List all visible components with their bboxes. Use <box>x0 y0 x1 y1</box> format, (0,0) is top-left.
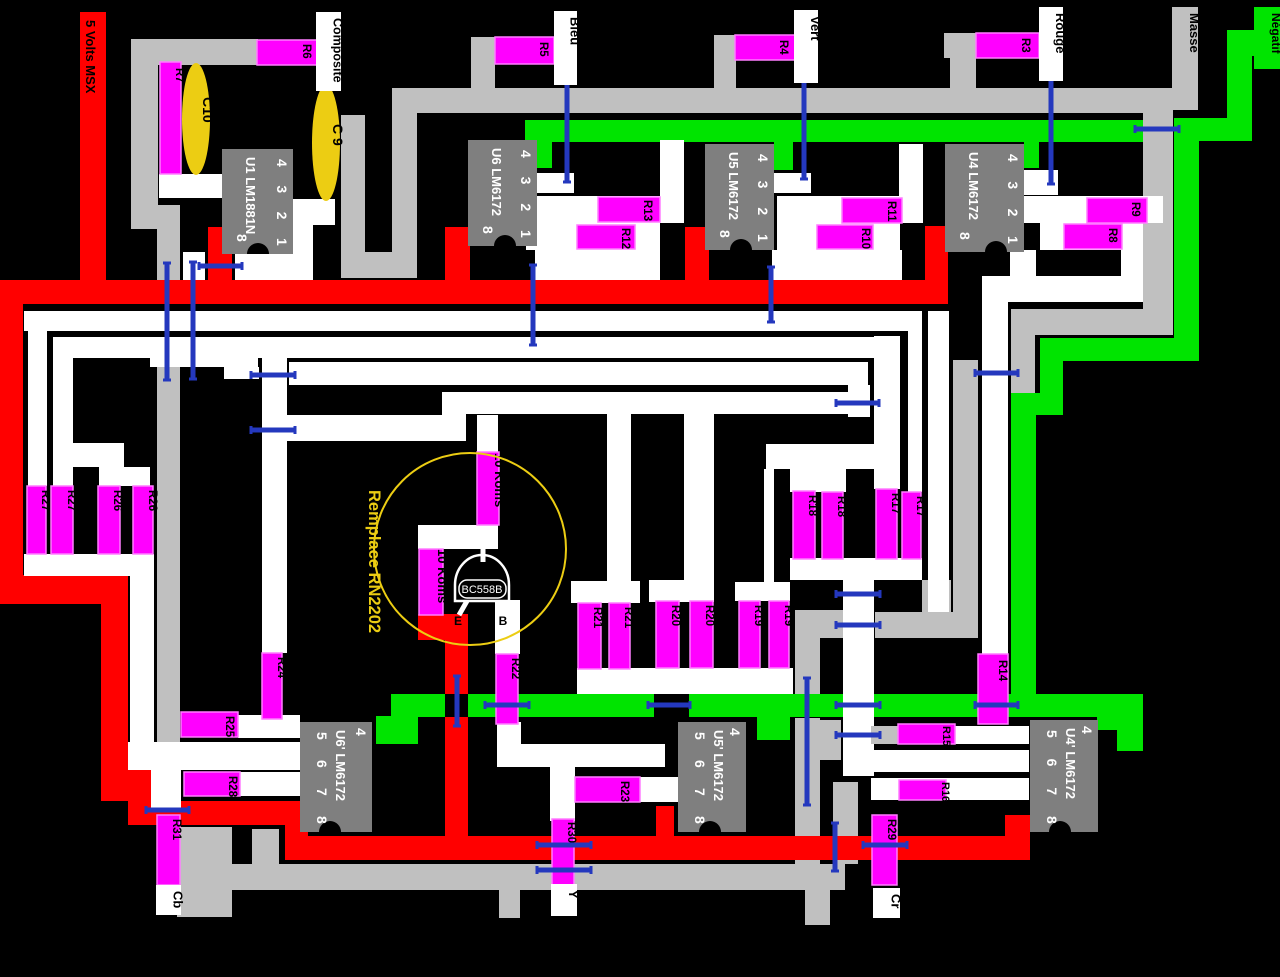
svg-text:Négatif: Négatif <box>1269 13 1280 55</box>
svg-text:R11: R11 <box>885 201 897 222</box>
svg-text:BC558B: BC558B <box>462 584 503 596</box>
svg-text:R30: R30 <box>565 822 577 843</box>
svg-text:Composite: Composite <box>331 18 345 83</box>
svg-text:R8: R8 <box>1106 228 1118 243</box>
svg-text:8: 8 <box>957 232 973 240</box>
svg-text:Cb: Cb <box>171 891 186 908</box>
svg-text:Remplace RN2202: Remplace RN2202 <box>365 490 383 633</box>
svg-text:7: 7 <box>1044 787 1060 795</box>
svg-text:7: 7 <box>692 788 708 796</box>
svg-text:R19: R19 <box>752 605 764 626</box>
svg-text:Bleu: Bleu <box>568 17 583 45</box>
svg-text:R3: R3 <box>1019 38 1031 53</box>
svg-text:C10: C10 <box>200 97 216 123</box>
svg-text:2: 2 <box>518 203 534 211</box>
svg-text:U6 LM6172: U6 LM6172 <box>489 148 504 216</box>
svg-text:8: 8 <box>480 226 496 234</box>
svg-text:R28: R28 <box>226 776 238 798</box>
svg-text:R19: R19 <box>782 605 794 626</box>
svg-text:B: B <box>499 614 508 628</box>
svg-text:1: 1 <box>274 238 290 246</box>
svg-text:R18: R18 <box>835 496 847 518</box>
svg-text:4: 4 <box>755 154 771 162</box>
svg-text:R26: R26 <box>146 490 158 511</box>
svg-text:Rouge: Rouge <box>1053 13 1068 53</box>
svg-text:4: 4 <box>353 728 369 736</box>
svg-text:R4: R4 <box>777 40 789 55</box>
svg-text:10 Koms: 10 Koms <box>492 453 507 507</box>
svg-text:U5 LM6172: U5 LM6172 <box>726 152 741 220</box>
svg-text:R20: R20 <box>669 605 681 626</box>
svg-text:R27: R27 <box>65 490 77 511</box>
svg-text:5: 5 <box>1044 730 1060 738</box>
svg-text:R14: R14 <box>996 660 1008 682</box>
svg-text:R17: R17 <box>914 496 926 517</box>
svg-text:5: 5 <box>692 732 708 740</box>
svg-text:Cr: Cr <box>889 894 904 908</box>
svg-text:3: 3 <box>518 177 534 185</box>
svg-text:4: 4 <box>1079 726 1095 734</box>
svg-text:8: 8 <box>692 816 708 824</box>
svg-text:3: 3 <box>1005 181 1021 189</box>
svg-text:R9: R9 <box>1129 202 1141 217</box>
svg-text:4: 4 <box>1005 154 1021 162</box>
svg-text:R24: R24 <box>275 657 287 679</box>
svg-text:7: 7 <box>314 788 330 796</box>
svg-text:C: C <box>477 531 486 545</box>
svg-text:1: 1 <box>755 234 771 242</box>
svg-text:R20: R20 <box>703 605 715 626</box>
svg-text:R31: R31 <box>170 819 182 841</box>
svg-text:R5: R5 <box>537 42 549 57</box>
svg-text:2: 2 <box>755 207 771 215</box>
svg-text:Masse: Masse <box>1187 13 1202 53</box>
svg-text:2: 2 <box>274 212 290 220</box>
svg-text:8: 8 <box>1044 816 1060 824</box>
svg-text:3: 3 <box>274 185 290 193</box>
svg-text:5: 5 <box>314 732 330 740</box>
svg-text:R21: R21 <box>622 607 634 629</box>
svg-text:4: 4 <box>518 150 534 158</box>
svg-text:R25: R25 <box>223 716 235 738</box>
svg-text:10 Koms: 10 Koms <box>435 549 450 603</box>
svg-text:R26: R26 <box>111 490 123 511</box>
svg-text:U4 LM6172: U4 LM6172 <box>966 152 981 220</box>
svg-text:5 Volts MSX: 5 Volts MSX <box>83 20 98 94</box>
svg-text:R27: R27 <box>39 490 51 511</box>
svg-text:R23: R23 <box>618 781 630 802</box>
svg-text:4: 4 <box>274 159 290 167</box>
svg-text:R18: R18 <box>806 495 818 517</box>
svg-text:U1 LM1881N: U1 LM1881N <box>243 157 258 234</box>
svg-text:R21: R21 <box>591 607 603 629</box>
svg-text:8: 8 <box>314 816 330 824</box>
svg-text:6: 6 <box>1044 759 1060 767</box>
svg-text:E: E <box>454 614 462 628</box>
svg-text:R15: R15 <box>940 726 952 746</box>
svg-text:4: 4 <box>727 728 743 736</box>
svg-text:8: 8 <box>717 230 733 238</box>
svg-text:8: 8 <box>234 234 250 242</box>
svg-text:6: 6 <box>314 760 330 768</box>
svg-text:R12: R12 <box>619 228 631 249</box>
svg-text:R7: R7 <box>173 68 185 83</box>
svg-text:R6: R6 <box>300 44 312 59</box>
svg-text:6: 6 <box>692 760 708 768</box>
svg-text:C 9: C 9 <box>330 124 346 146</box>
svg-text:1: 1 <box>518 230 534 238</box>
svg-text:Vert: Vert <box>808 16 823 41</box>
svg-text:U4' LM6172: U4' LM6172 <box>1063 728 1078 799</box>
svg-text:R17: R17 <box>889 493 901 514</box>
svg-text:Y: Y <box>566 890 581 899</box>
svg-text:U5' LM6172: U5' LM6172 <box>711 730 726 801</box>
svg-text:R22: R22 <box>509 658 521 679</box>
svg-text:U6' LM6172: U6' LM6172 <box>333 730 348 801</box>
svg-text:R13: R13 <box>641 200 653 221</box>
svg-text:3: 3 <box>755 181 771 189</box>
svg-text:R16: R16 <box>939 782 951 802</box>
svg-text:1: 1 <box>1005 236 1021 244</box>
svg-text:R10: R10 <box>859 228 871 249</box>
svg-text:R29: R29 <box>885 819 897 840</box>
svg-text:2: 2 <box>1005 209 1021 217</box>
